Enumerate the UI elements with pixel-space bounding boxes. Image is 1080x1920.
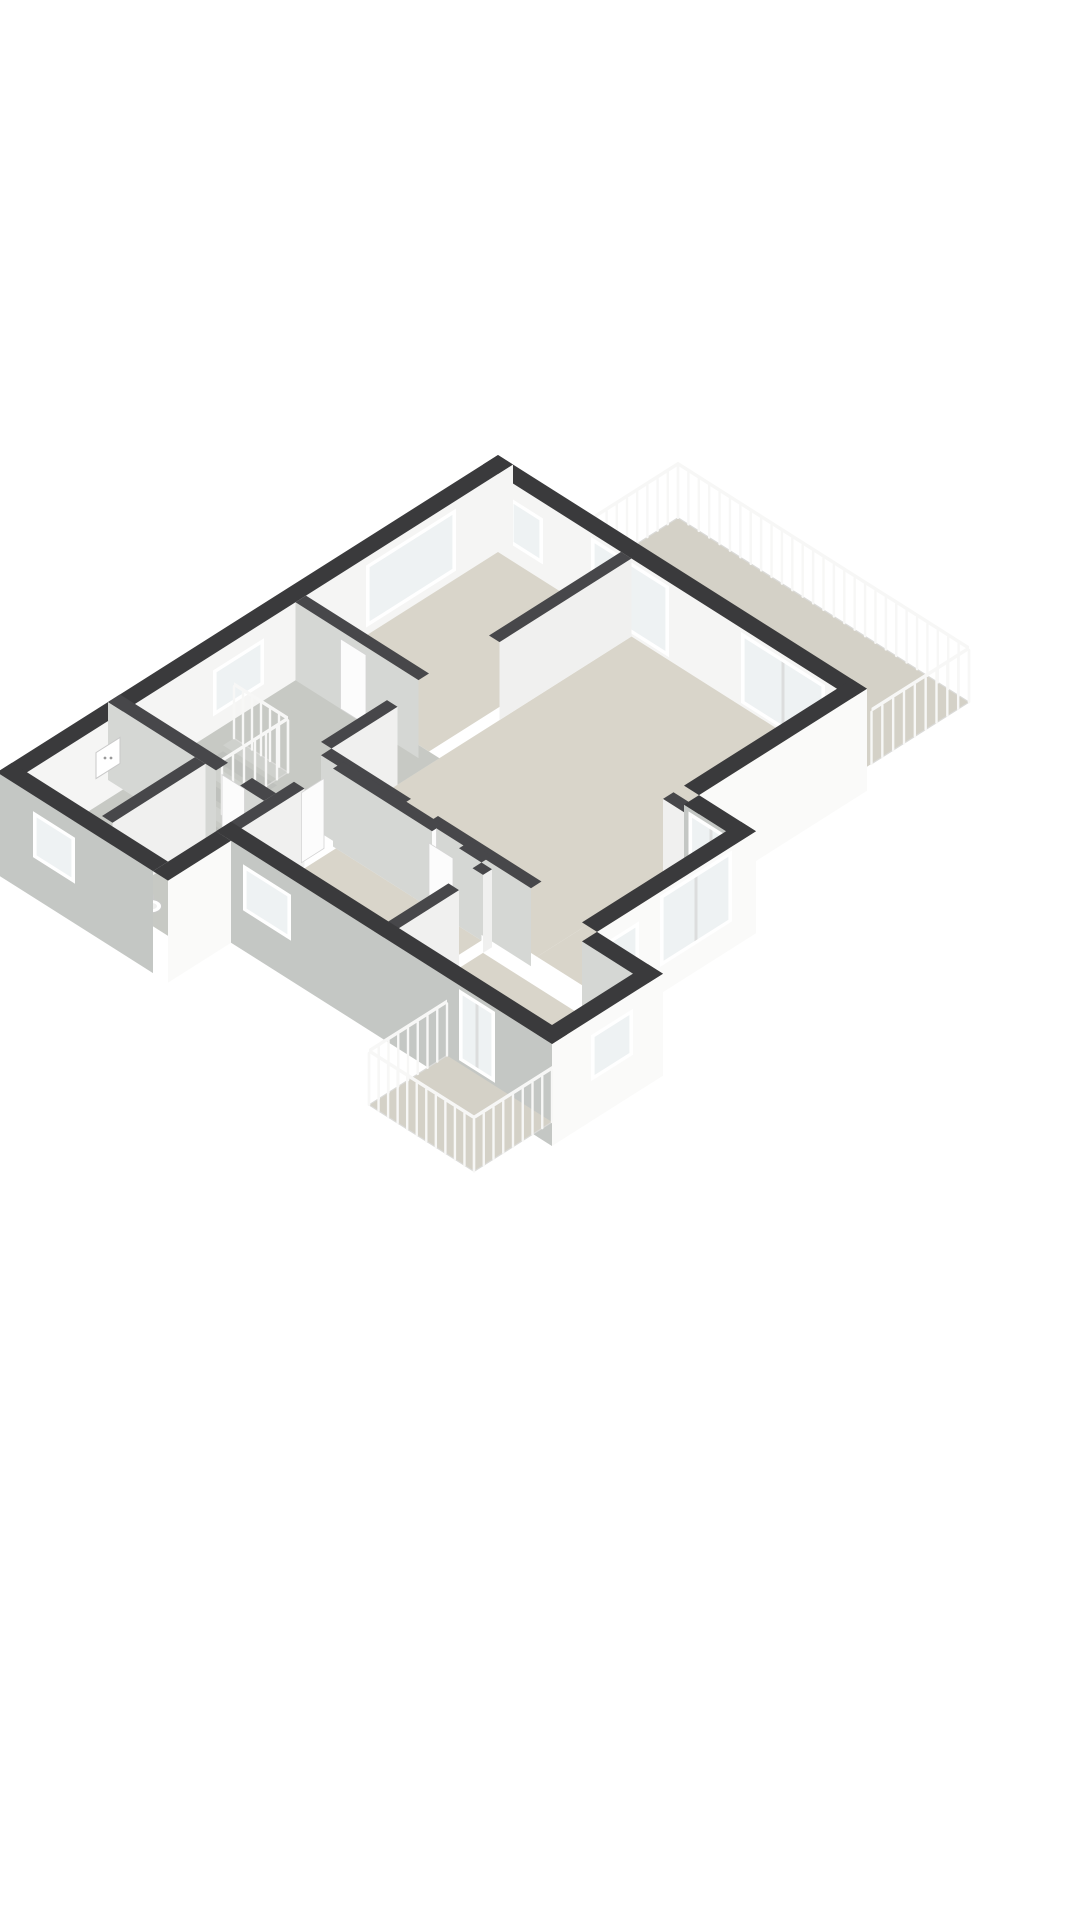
slider-se-mullion <box>695 876 698 941</box>
electrical-panel-dot <box>110 757 113 760</box>
slider-ne-2-mullion <box>782 662 785 727</box>
electrical-panel-dot <box>104 757 107 760</box>
wall-bedroom2-north-b-face <box>459 848 482 940</box>
slider-balcony-mullion <box>476 1004 479 1069</box>
door-bedroom2 <box>302 778 325 862</box>
wall-bedroom2-3-upper-face <box>483 869 492 953</box>
floor-plan-svg <box>0 0 1080 1920</box>
floor-plan-figure <box>0 0 1080 1920</box>
